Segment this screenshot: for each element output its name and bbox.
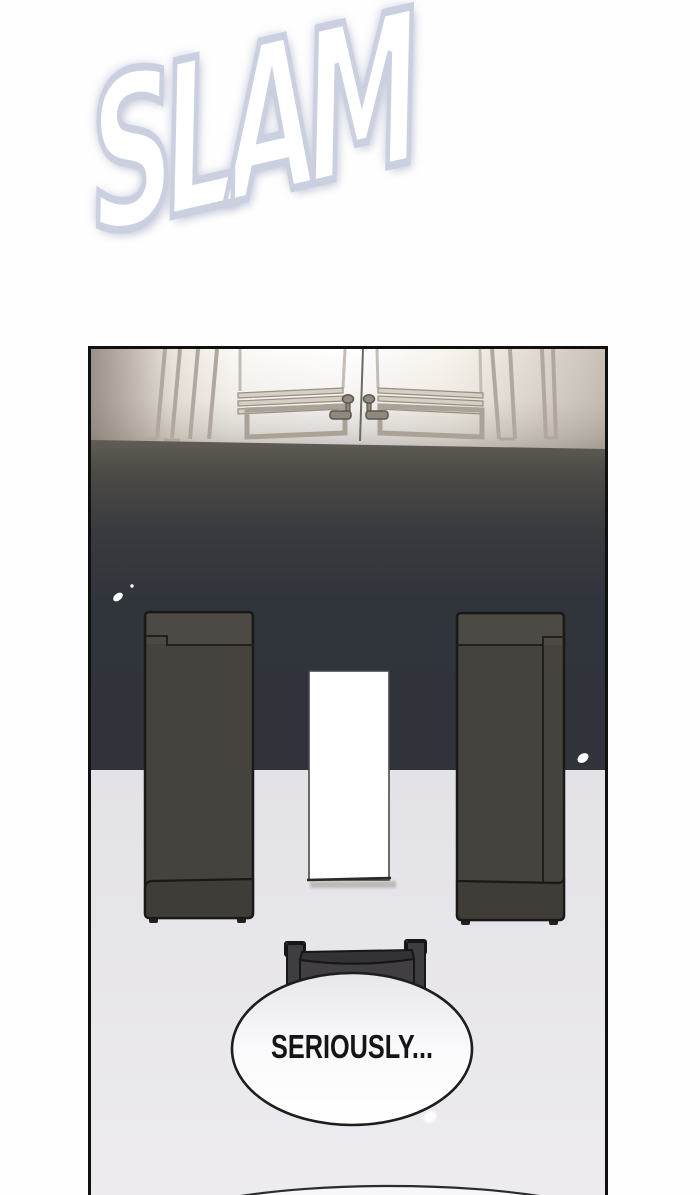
table-shadow: [310, 881, 396, 888]
sfx-slam-text: SLAM: [82, 0, 419, 268]
doorway-area: [91, 349, 605, 450]
comic-page: SLAM: [0, 0, 700, 1195]
panel-artwork: SERIOUSLY...: [91, 349, 605, 1195]
sofa-right: [457, 613, 564, 925]
speech-bubble: SERIOUSLY...: [232, 973, 472, 1125]
speech-bubble-text: SERIOUSLY...: [271, 1028, 433, 1065]
sofa-left: [145, 612, 253, 923]
sofa-front-band: [145, 879, 253, 918]
sofa-front-band: [457, 877, 564, 920]
coffee-table: [307, 671, 396, 888]
comic-panel: SERIOUSLY...: [88, 346, 608, 1195]
